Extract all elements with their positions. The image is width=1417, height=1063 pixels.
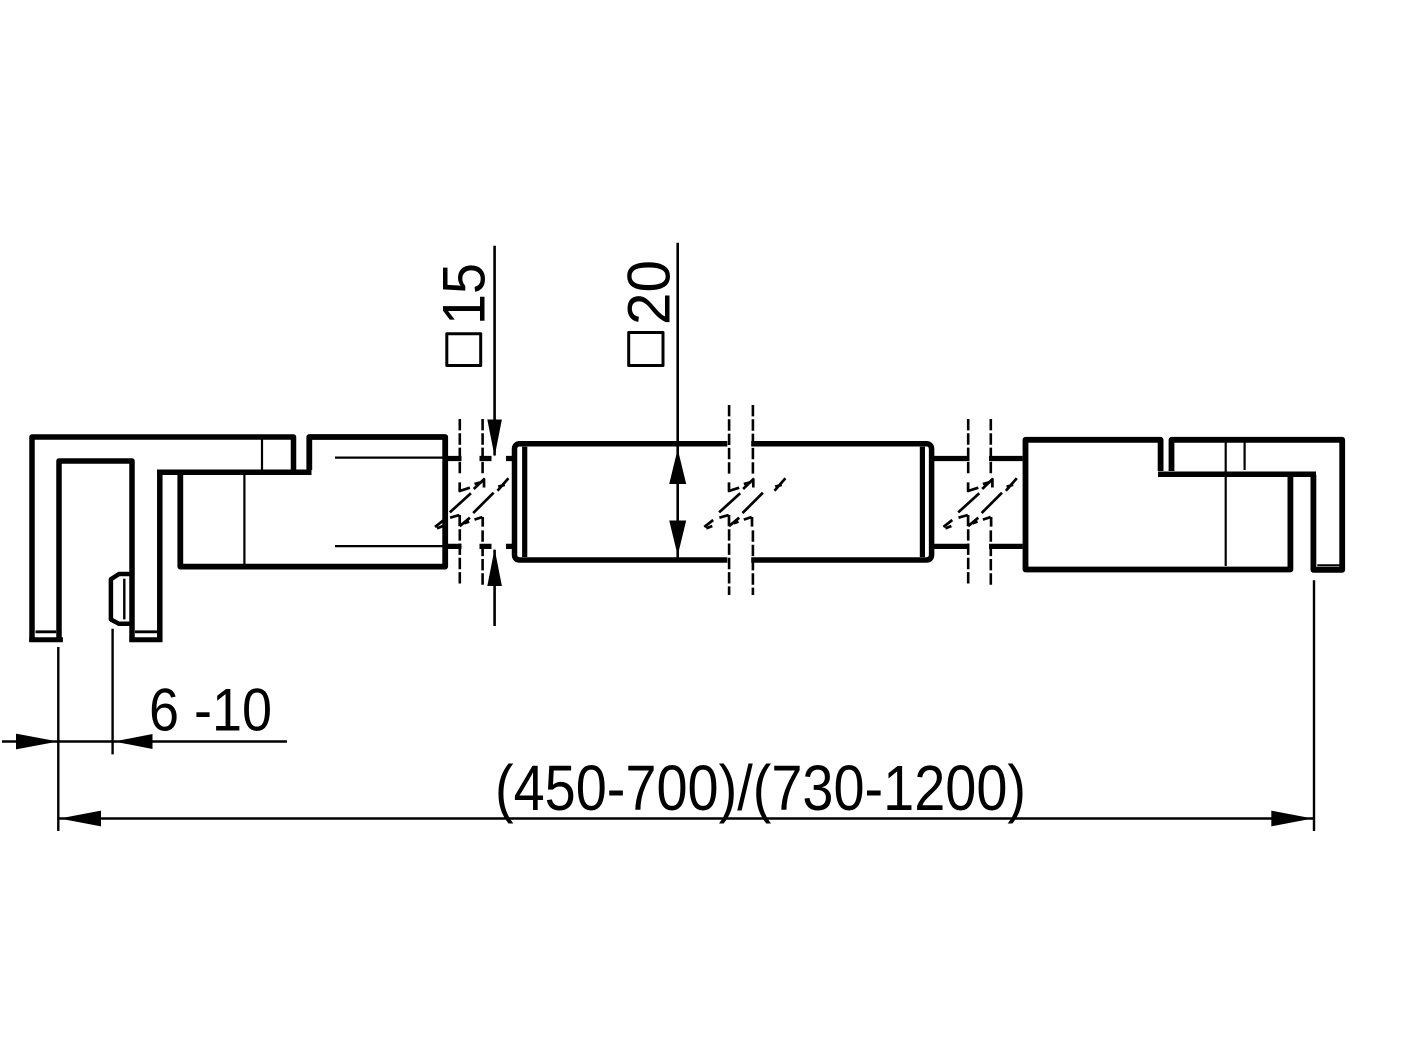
svg-text:6 -10: 6 -10 (149, 677, 272, 744)
svg-text:15: 15 (431, 263, 498, 325)
svg-text:(450-700)/(730-1200): (450-700)/(730-1200) (495, 752, 1026, 824)
svg-text:20: 20 (616, 260, 683, 325)
